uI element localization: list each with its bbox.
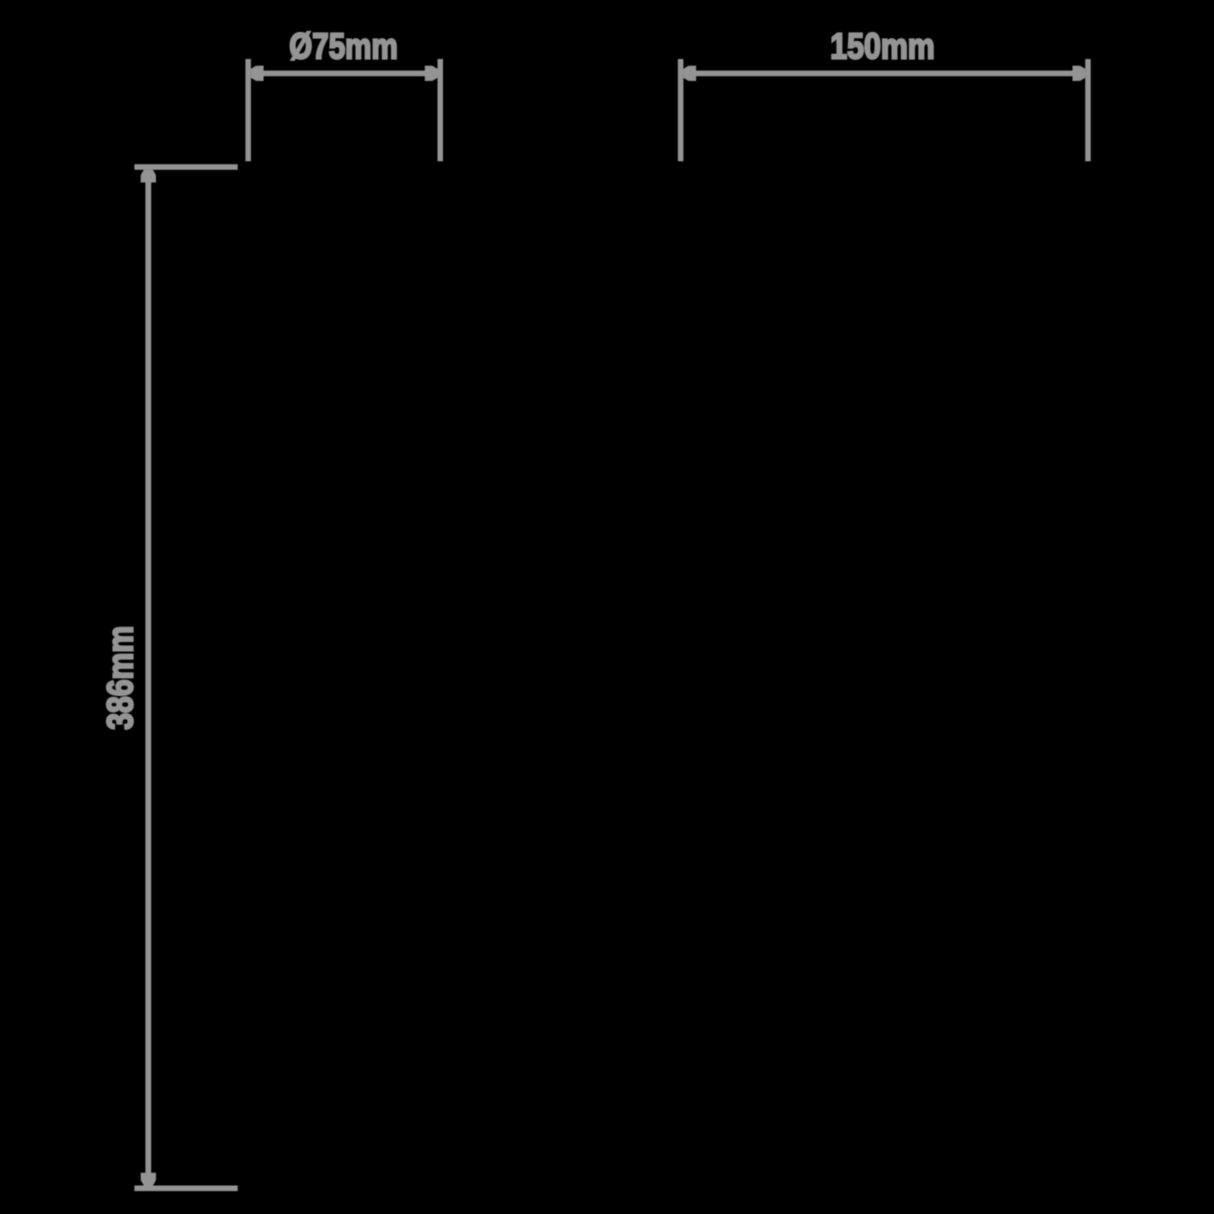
- svg-text:386mm: 386mm: [100, 626, 141, 730]
- svg-text:150mm: 150mm: [830, 25, 935, 66]
- svg-text:Ø75mm: Ø75mm: [289, 25, 398, 66]
